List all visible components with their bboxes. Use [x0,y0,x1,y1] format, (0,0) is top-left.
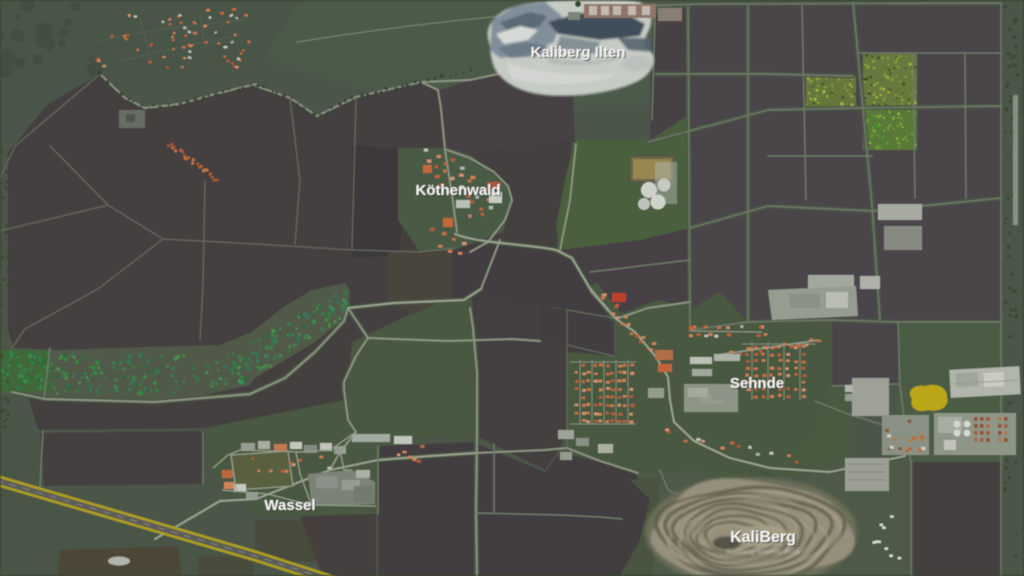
svg-text:Köthenwald: Köthenwald [416,182,501,199]
svg-text:Wassel: Wassel [264,497,315,514]
svg-text:Sehnde: Sehnde [730,375,784,392]
svg-text:Kaliberg Sehnde 2016: Kaliberg Sehnde 2016 [727,549,800,556]
svg-text:Kaliberg Ilten: Kaliberg Ilten [530,44,625,61]
svg-text:KaliBerg: KaliBerg [730,529,796,546]
